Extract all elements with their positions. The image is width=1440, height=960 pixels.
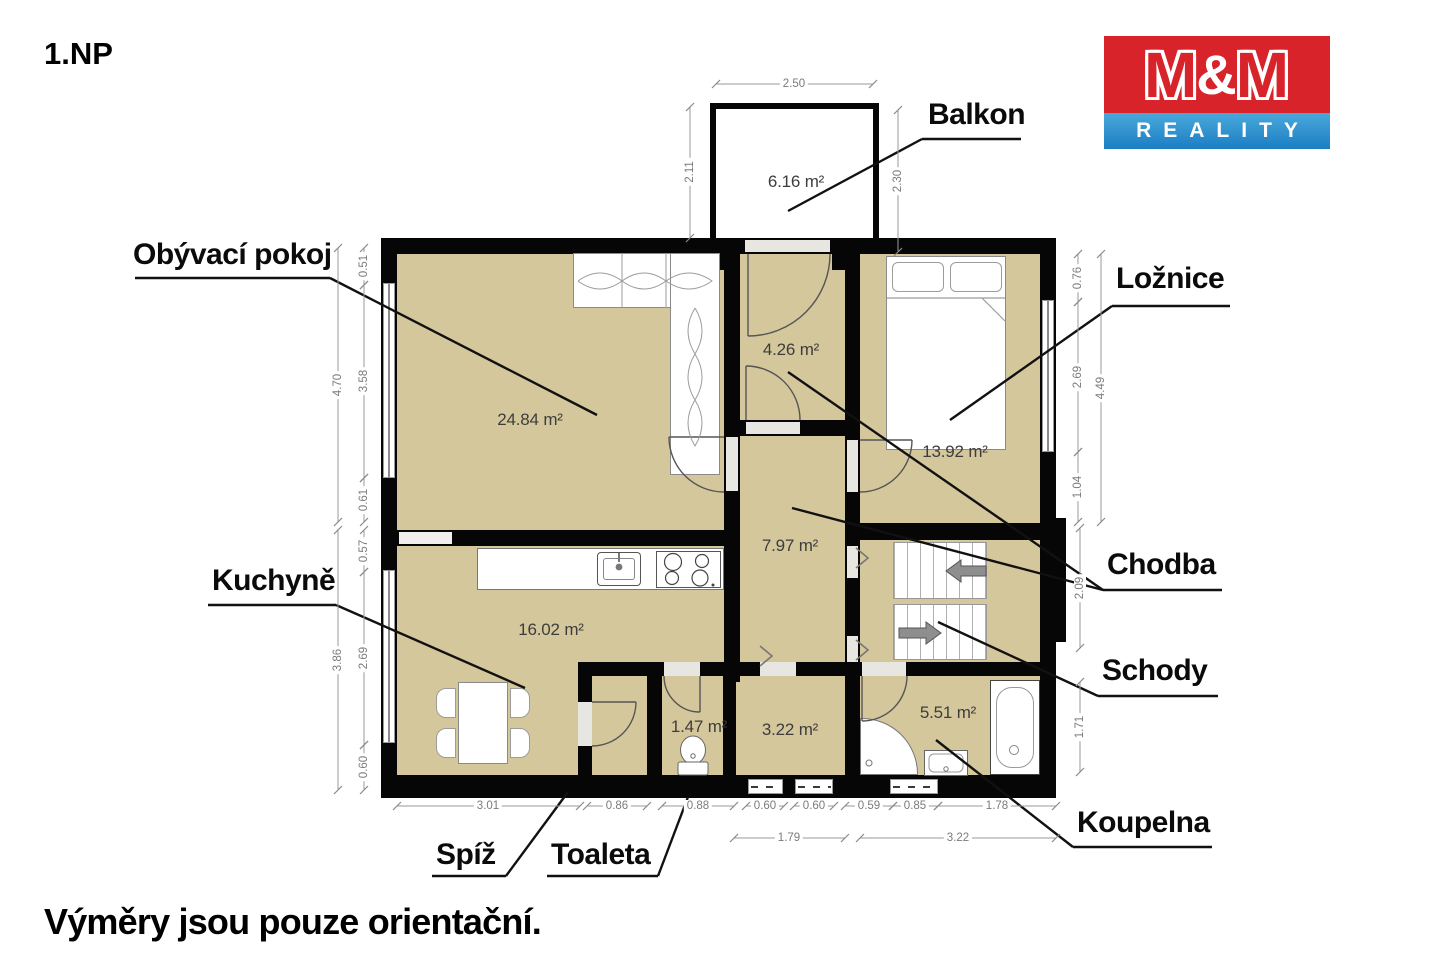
room-area-vestibul: 4.26 m²	[763, 340, 819, 360]
living-door-arc	[669, 437, 724, 492]
room-area-balkon: 6.16 m²	[768, 172, 824, 192]
dimension-label: 0.60	[800, 800, 828, 812]
logo-letter-m2: M	[1236, 43, 1290, 107]
toilet	[678, 736, 708, 775]
bathroom-door-arc	[862, 676, 907, 721]
room-area-toaleta: 1.47 m²	[671, 717, 727, 737]
room-area-obyvaci-pokoj: 24.84 m²	[497, 410, 563, 430]
room-label-toaleta: Toaleta	[551, 838, 650, 872]
dimension-label: 3.58	[358, 367, 370, 395]
logo-letter-m1: M	[1144, 43, 1198, 107]
floor-level-label: 1.NP	[44, 36, 113, 72]
room-label-koupelna: Koupelna	[1077, 806, 1210, 840]
dimension-label: 0.86	[603, 800, 631, 812]
room-label-chodba: Chodba	[1107, 548, 1216, 582]
dimension-label: 0.88	[684, 800, 712, 812]
dimension-label: 0.59	[855, 800, 883, 812]
dimension-label: 0.61	[358, 486, 370, 514]
dimension-label: 1.04	[1072, 473, 1084, 501]
room-label-balkon: Balkon	[928, 98, 1025, 132]
opening-chevrons	[760, 548, 868, 666]
label-leader-koupelna	[936, 740, 1073, 847]
dimension-label: 3.01	[474, 800, 502, 812]
room-area-koupelna: 5.51 m²	[920, 703, 976, 723]
dimension-label: 0.60	[358, 753, 370, 781]
dimension-label: 1.79	[775, 832, 803, 844]
dimension-label: 0.85	[901, 800, 929, 812]
bedroom-door-arc	[860, 440, 912, 492]
toilet-door-arc	[664, 676, 700, 712]
sofa-cushions	[578, 253, 712, 446]
dimension-label: 4.70	[332, 371, 344, 399]
pantry-door-arc	[592, 702, 636, 746]
door-arcs	[592, 254, 912, 746]
label-leader-schody	[938, 622, 1098, 696]
dimension-label: 0.76	[1072, 264, 1084, 292]
room-label-obyvaci-pokoj: Obývací pokoj	[133, 238, 332, 272]
dimension-label: 2.69	[1072, 363, 1084, 391]
room-area-kuchyne: 16.02 m²	[518, 620, 584, 640]
logo-mm-block: M&M	[1104, 36, 1330, 113]
disclaimer-note: Výměry jsou pouze orientační.	[44, 901, 541, 943]
dimension-label: 1.78	[983, 800, 1011, 812]
room-area-loznice: 13.92 m²	[922, 442, 988, 462]
logo-reality-banner: REALITY	[1104, 113, 1330, 149]
dimension-label: 1.71	[1074, 713, 1086, 741]
dimension-label: 3.22	[944, 832, 972, 844]
label-leader-chodba	[792, 508, 1103, 590]
dimension-label: 2.69	[358, 644, 370, 672]
room-label-schody: Schody	[1102, 654, 1207, 688]
mm-reality-logo: M&M REALITY	[1104, 36, 1330, 149]
dimension-label: 3.86	[332, 646, 344, 674]
dimension-label: 2.50	[780, 78, 808, 90]
bed-blanket-lines	[887, 298, 1005, 321]
dimension-label: 0.51	[358, 252, 370, 280]
balcony-door-arc	[748, 254, 830, 336]
dimension-label: 0.60	[751, 800, 779, 812]
room-label-spiz: Spíž	[436, 838, 496, 872]
floorplan-image: 1.NP Výměry jsou pouze orientační. M&M R…	[0, 0, 1440, 960]
stairs-arrows	[899, 560, 986, 644]
bathroom-details	[866, 746, 1019, 773]
room-area-predsin: 3.22 m²	[762, 720, 818, 740]
room-label-loznice: Ložnice	[1116, 262, 1224, 296]
dimension-label: 2.30	[892, 167, 904, 195]
room-label-kuchyne: Kuchyně	[212, 564, 335, 598]
dimension-label: 0.57	[358, 537, 370, 565]
kitchen-details	[616, 553, 715, 587]
logo-ampersand: &	[1196, 47, 1237, 103]
label-leader-loznice	[950, 306, 1112, 420]
dimension-label: 4.49	[1095, 374, 1107, 402]
label-leader-obyvaci-pokoj	[330, 278, 597, 415]
label-leader-chodba	[788, 372, 1103, 590]
room-area-chodba: 7.97 m²	[762, 536, 818, 556]
dimension-label: 2.09	[1074, 574, 1086, 602]
dimension-label: 2.11	[684, 158, 696, 186]
